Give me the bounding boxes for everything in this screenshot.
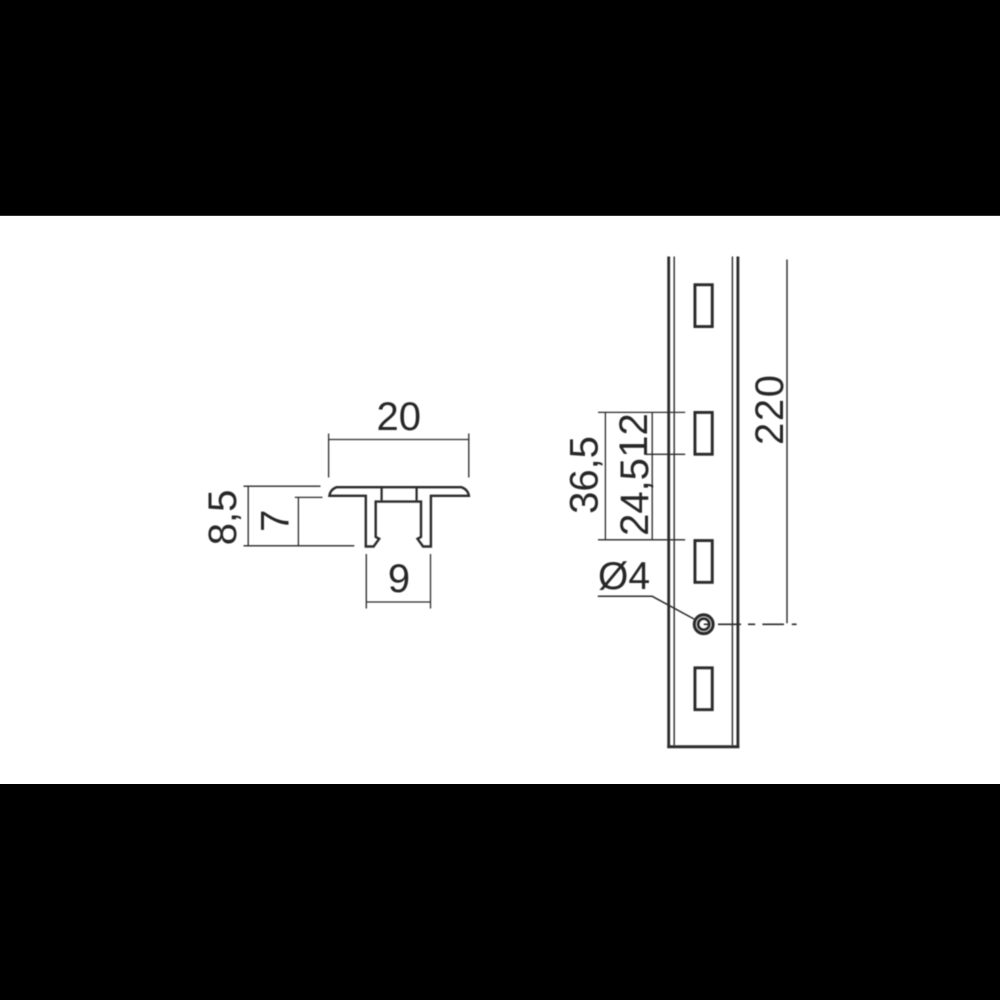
svg-text:24,5: 24,5 xyxy=(613,458,657,536)
svg-text:7: 7 xyxy=(254,510,298,532)
svg-text:8,5: 8,5 xyxy=(201,490,245,546)
svg-text:12: 12 xyxy=(612,413,656,458)
svg-text:36,5: 36,5 xyxy=(563,436,607,514)
svg-text:Ø4: Ø4 xyxy=(598,555,650,598)
svg-text:20: 20 xyxy=(377,395,422,439)
svg-text:9: 9 xyxy=(388,557,410,601)
svg-text:220: 220 xyxy=(748,373,792,445)
